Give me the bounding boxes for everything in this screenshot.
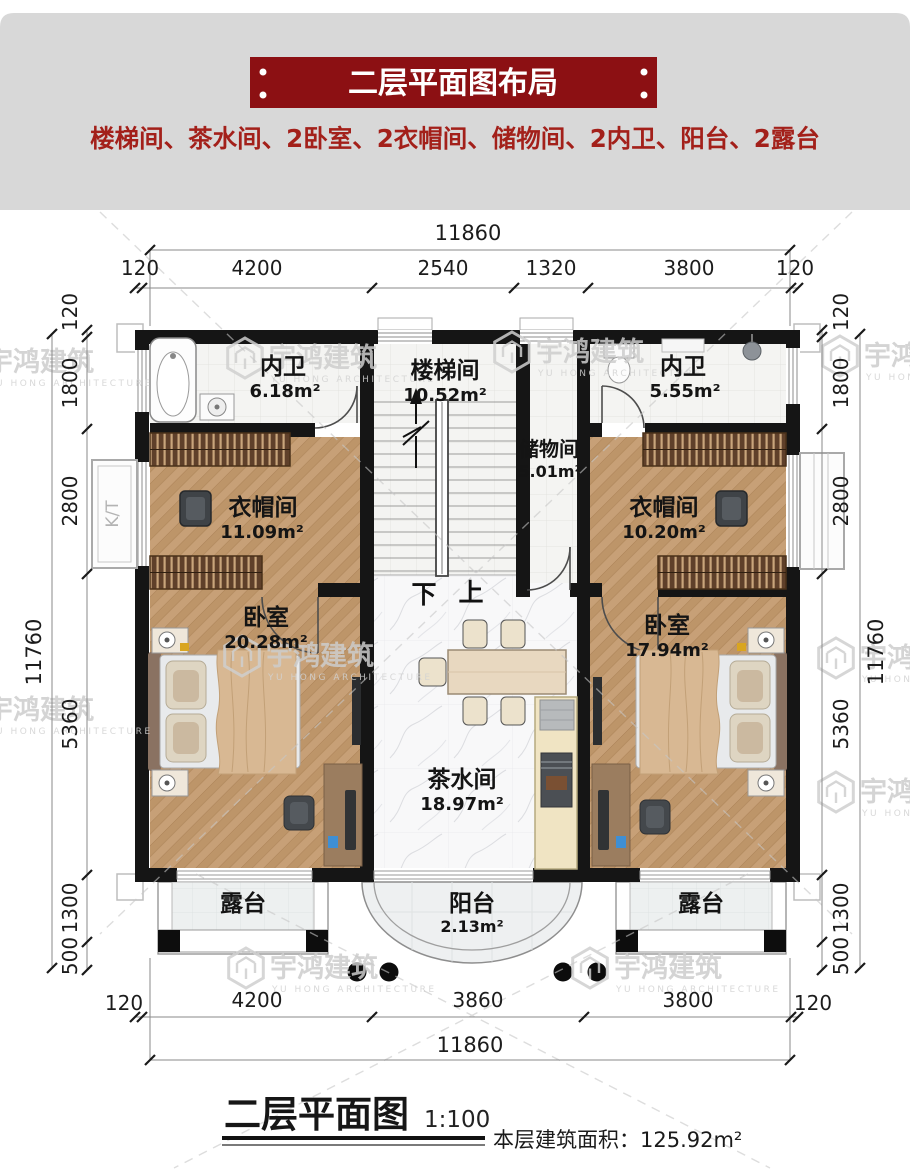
tea-counter xyxy=(535,697,577,869)
wall-tea-right xyxy=(577,344,590,868)
dim-right-4: 1300 xyxy=(829,883,853,934)
wall-bottom-b xyxy=(312,868,374,882)
room-area-bed-right: 17.94m² xyxy=(625,640,709,661)
footer-underline-thick xyxy=(222,1136,485,1140)
dim-top-0: 120 xyxy=(121,256,159,280)
bed-right xyxy=(636,650,787,774)
wall-right xyxy=(786,330,800,882)
sink-left xyxy=(200,394,234,420)
wall-storage-b xyxy=(570,583,590,597)
right-wall-windows xyxy=(786,348,800,567)
header-band xyxy=(0,13,910,210)
dim-left-2: 2800 xyxy=(58,476,82,527)
room-label-bath-right: 内卫 xyxy=(660,354,706,380)
wall-bedroom-left-divider xyxy=(318,583,360,597)
room-area-bath-left: 6.18m² xyxy=(249,381,320,402)
dim-top-3: 1320 xyxy=(526,256,577,280)
room-label-tea: 茶水间 xyxy=(428,767,497,793)
dim-top-5: 120 xyxy=(776,256,814,280)
dim-top-1: 4200 xyxy=(232,256,283,280)
wall-left xyxy=(135,330,149,882)
room-label-bed-left: 卧室 xyxy=(243,604,289,631)
dim-right-3: 5360 xyxy=(829,699,853,750)
footer-area-text: 本层建筑面积：125.92m² xyxy=(493,1128,742,1152)
room-area-bath-right: 5.55m² xyxy=(649,381,720,402)
dim-left-5: 500 xyxy=(58,937,82,975)
page-subtitle: 楼梯间、茶水间、2卧室、2衣帽间、储物间、2内卫、阳台、2露台 xyxy=(90,124,820,153)
room-label-storage: 储物间 xyxy=(519,437,579,461)
room-area-storage: 5.01m² xyxy=(518,462,581,481)
room-area-balcony: 2.13m² xyxy=(440,917,503,936)
kt-label: K/T xyxy=(103,500,123,528)
dim-right-1: 1800 xyxy=(829,358,853,409)
dim-bottom-total: 11860 xyxy=(437,1033,504,1057)
room-area-tea: 18.97m² xyxy=(420,794,504,815)
kt-box: K/T xyxy=(92,460,137,568)
dim-right-0: 120 xyxy=(829,293,853,331)
page-title: 二层平面图布局 xyxy=(348,66,558,101)
room-label-bath-left: 内卫 xyxy=(260,354,306,380)
footer: 二层平面图 1:100 本层建筑面积：125.92m² xyxy=(222,1093,742,1152)
stair-down-label: 下 xyxy=(411,580,436,609)
shower-head-icon xyxy=(743,342,761,360)
room-label-terrace-right: 露台 xyxy=(678,890,724,917)
dim-right-total: 11760 xyxy=(864,619,888,686)
footer-scale: 1:100 xyxy=(424,1107,490,1133)
stair-up-label: 上 xyxy=(458,578,483,607)
dim-bottom-2: 3860 xyxy=(453,988,504,1012)
dim-right-2: 2800 xyxy=(829,476,853,527)
room-label-cloak-left: 衣帽间 xyxy=(229,494,298,521)
dim-top-4: 3800 xyxy=(664,256,715,280)
room-area-cloak-left: 11.09m² xyxy=(220,522,304,543)
dim-left-3: 5360 xyxy=(58,699,82,750)
dim-left-1: 1800 xyxy=(58,358,82,409)
footer-title: 二层平面图 xyxy=(224,1093,409,1136)
wall-bottom-c xyxy=(533,868,640,882)
room-area-cloak-right: 10.20m² xyxy=(622,522,706,543)
tv-panel-left xyxy=(352,677,361,745)
dim-bottom-1: 4200 xyxy=(232,988,283,1012)
header: 二层平面图布局 楼梯间、茶水间、2卧室、2衣帽间、储物间、2内卫、阳台、2露台 xyxy=(0,13,910,210)
floor-plan-page: 宇鸿建筑 YU HONG ARCHITECTURE 二层平面图布局 楼梯间、茶水… xyxy=(0,0,910,1171)
tv-panel-right xyxy=(593,677,602,745)
room-label-terrace-left: 露台 xyxy=(220,890,266,917)
dim-bottom-0: 120 xyxy=(105,991,143,1015)
dim-top-2: 2540 xyxy=(418,256,469,280)
dim-top-total: 11860 xyxy=(435,221,502,245)
room-label-cloak-right: 衣帽间 xyxy=(630,494,699,521)
room-area-stair: 10.52m² xyxy=(403,385,487,406)
bathtub xyxy=(150,338,196,422)
room-label-stair: 楼梯间 xyxy=(411,357,480,384)
wall-bath-right-divider-a xyxy=(590,423,602,437)
dim-bottom-4: 120 xyxy=(794,991,832,1015)
wall-bedroom-right-divider-a xyxy=(590,583,602,597)
floor-plan-drawing: 宇鸿建筑 YU HONG ARCHITECTURE 二层平面图布局 楼梯间、茶水… xyxy=(0,0,910,1171)
dim-left-4: 1300 xyxy=(58,883,82,934)
dim-left-0: 120 xyxy=(58,293,82,331)
dim-right-5: 500 xyxy=(829,937,853,975)
room-label-bed-right: 卧室 xyxy=(644,612,690,639)
wall-bottom-d xyxy=(770,868,798,882)
dim-left-total: 11760 xyxy=(22,619,46,686)
footer-underline-thin xyxy=(222,1144,485,1146)
dim-bottom-3: 3800 xyxy=(663,988,714,1012)
room-area-bed-left: 20.28m² xyxy=(224,632,308,653)
sliding-doors xyxy=(177,871,770,879)
room-label-balcony: 阳台 xyxy=(449,890,495,917)
